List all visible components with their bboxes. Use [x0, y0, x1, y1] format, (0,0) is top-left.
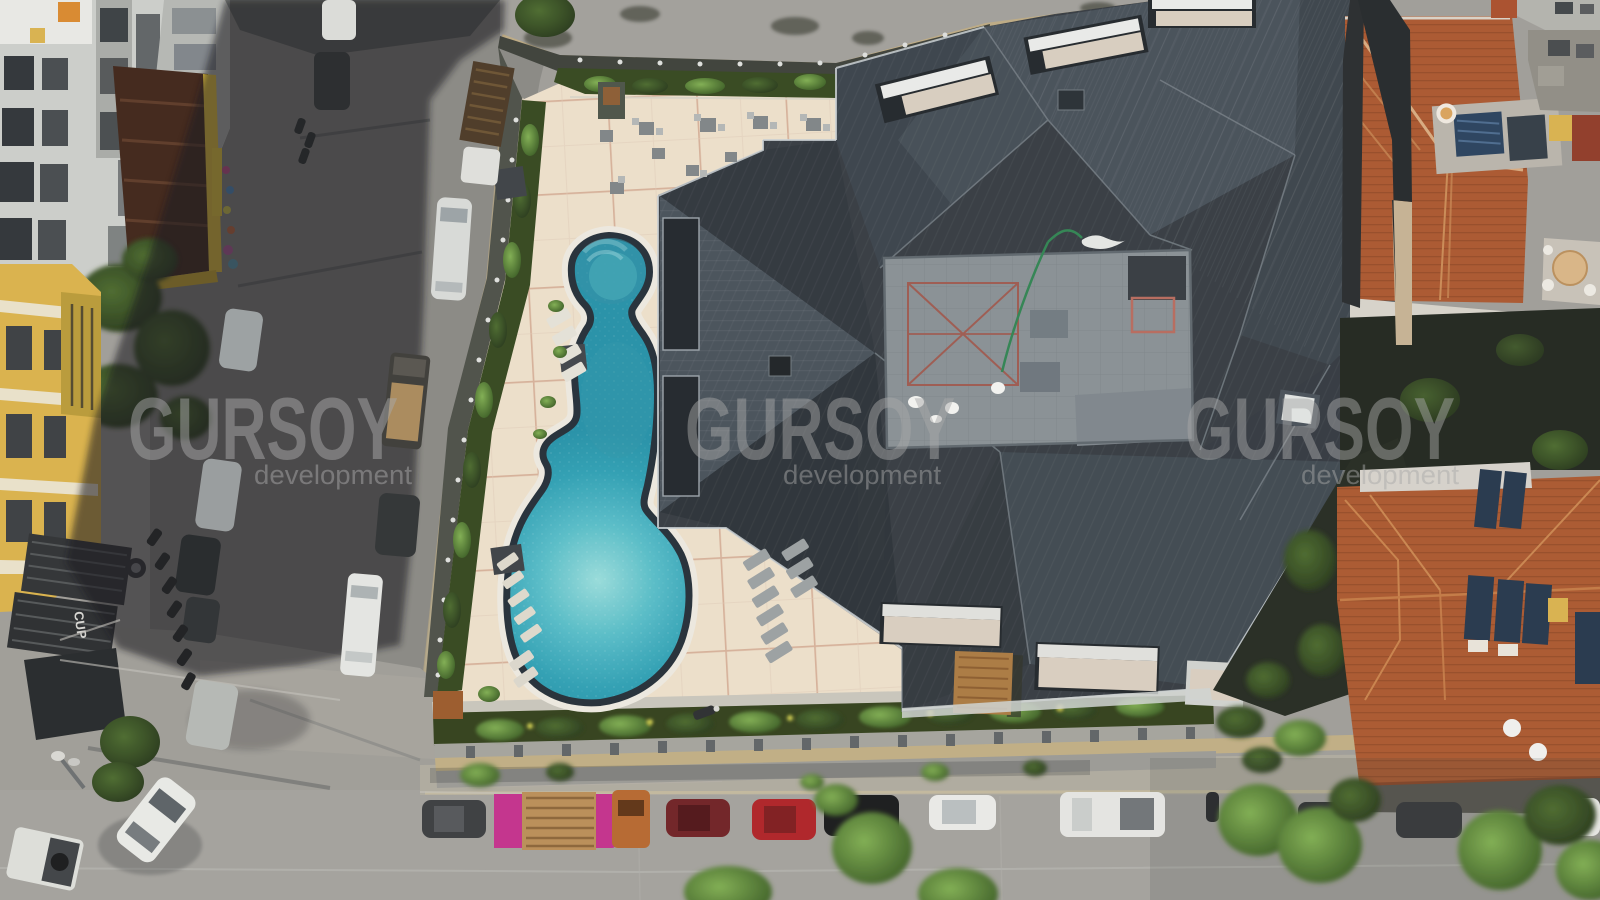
svg-text:development: development: [254, 460, 413, 490]
svg-text:development: development: [783, 460, 942, 490]
svg-text:development: development: [1301, 460, 1460, 490]
